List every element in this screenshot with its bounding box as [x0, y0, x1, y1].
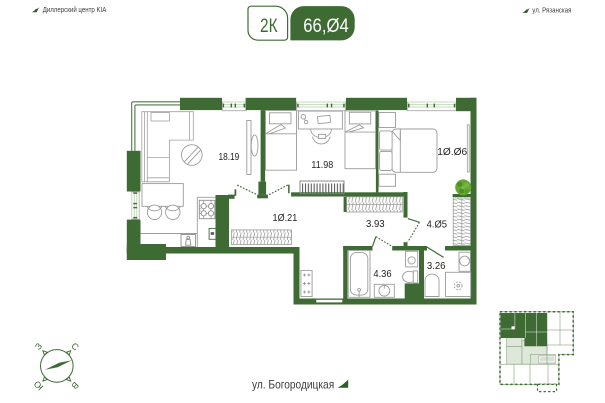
svg-text:ул. Рязанская: ул. Рязанская [532, 7, 571, 15]
svg-text:4.36: 4.36 [373, 268, 391, 280]
svg-text:66,Ø4: 66,Ø4 [303, 15, 349, 37]
svg-text:3.93: 3.93 [366, 218, 385, 230]
svg-text:2К: 2К [260, 16, 278, 37]
svg-text:4.Ø5: 4.Ø5 [427, 219, 448, 231]
svg-text:ул. Богородицкая: ул. Богородицкая [252, 378, 334, 392]
svg-text:Диллерский центр KIA: Диллерский центр KIA [43, 6, 107, 14]
svg-text:18.19: 18.19 [219, 151, 240, 163]
svg-text:1Ø.Ø6: 1Ø.Ø6 [437, 146, 467, 158]
svg-text:11.98: 11.98 [311, 159, 333, 171]
svg-text:3.26: 3.26 [427, 260, 446, 272]
svg-text:1Ø.21: 1Ø.21 [273, 212, 298, 224]
